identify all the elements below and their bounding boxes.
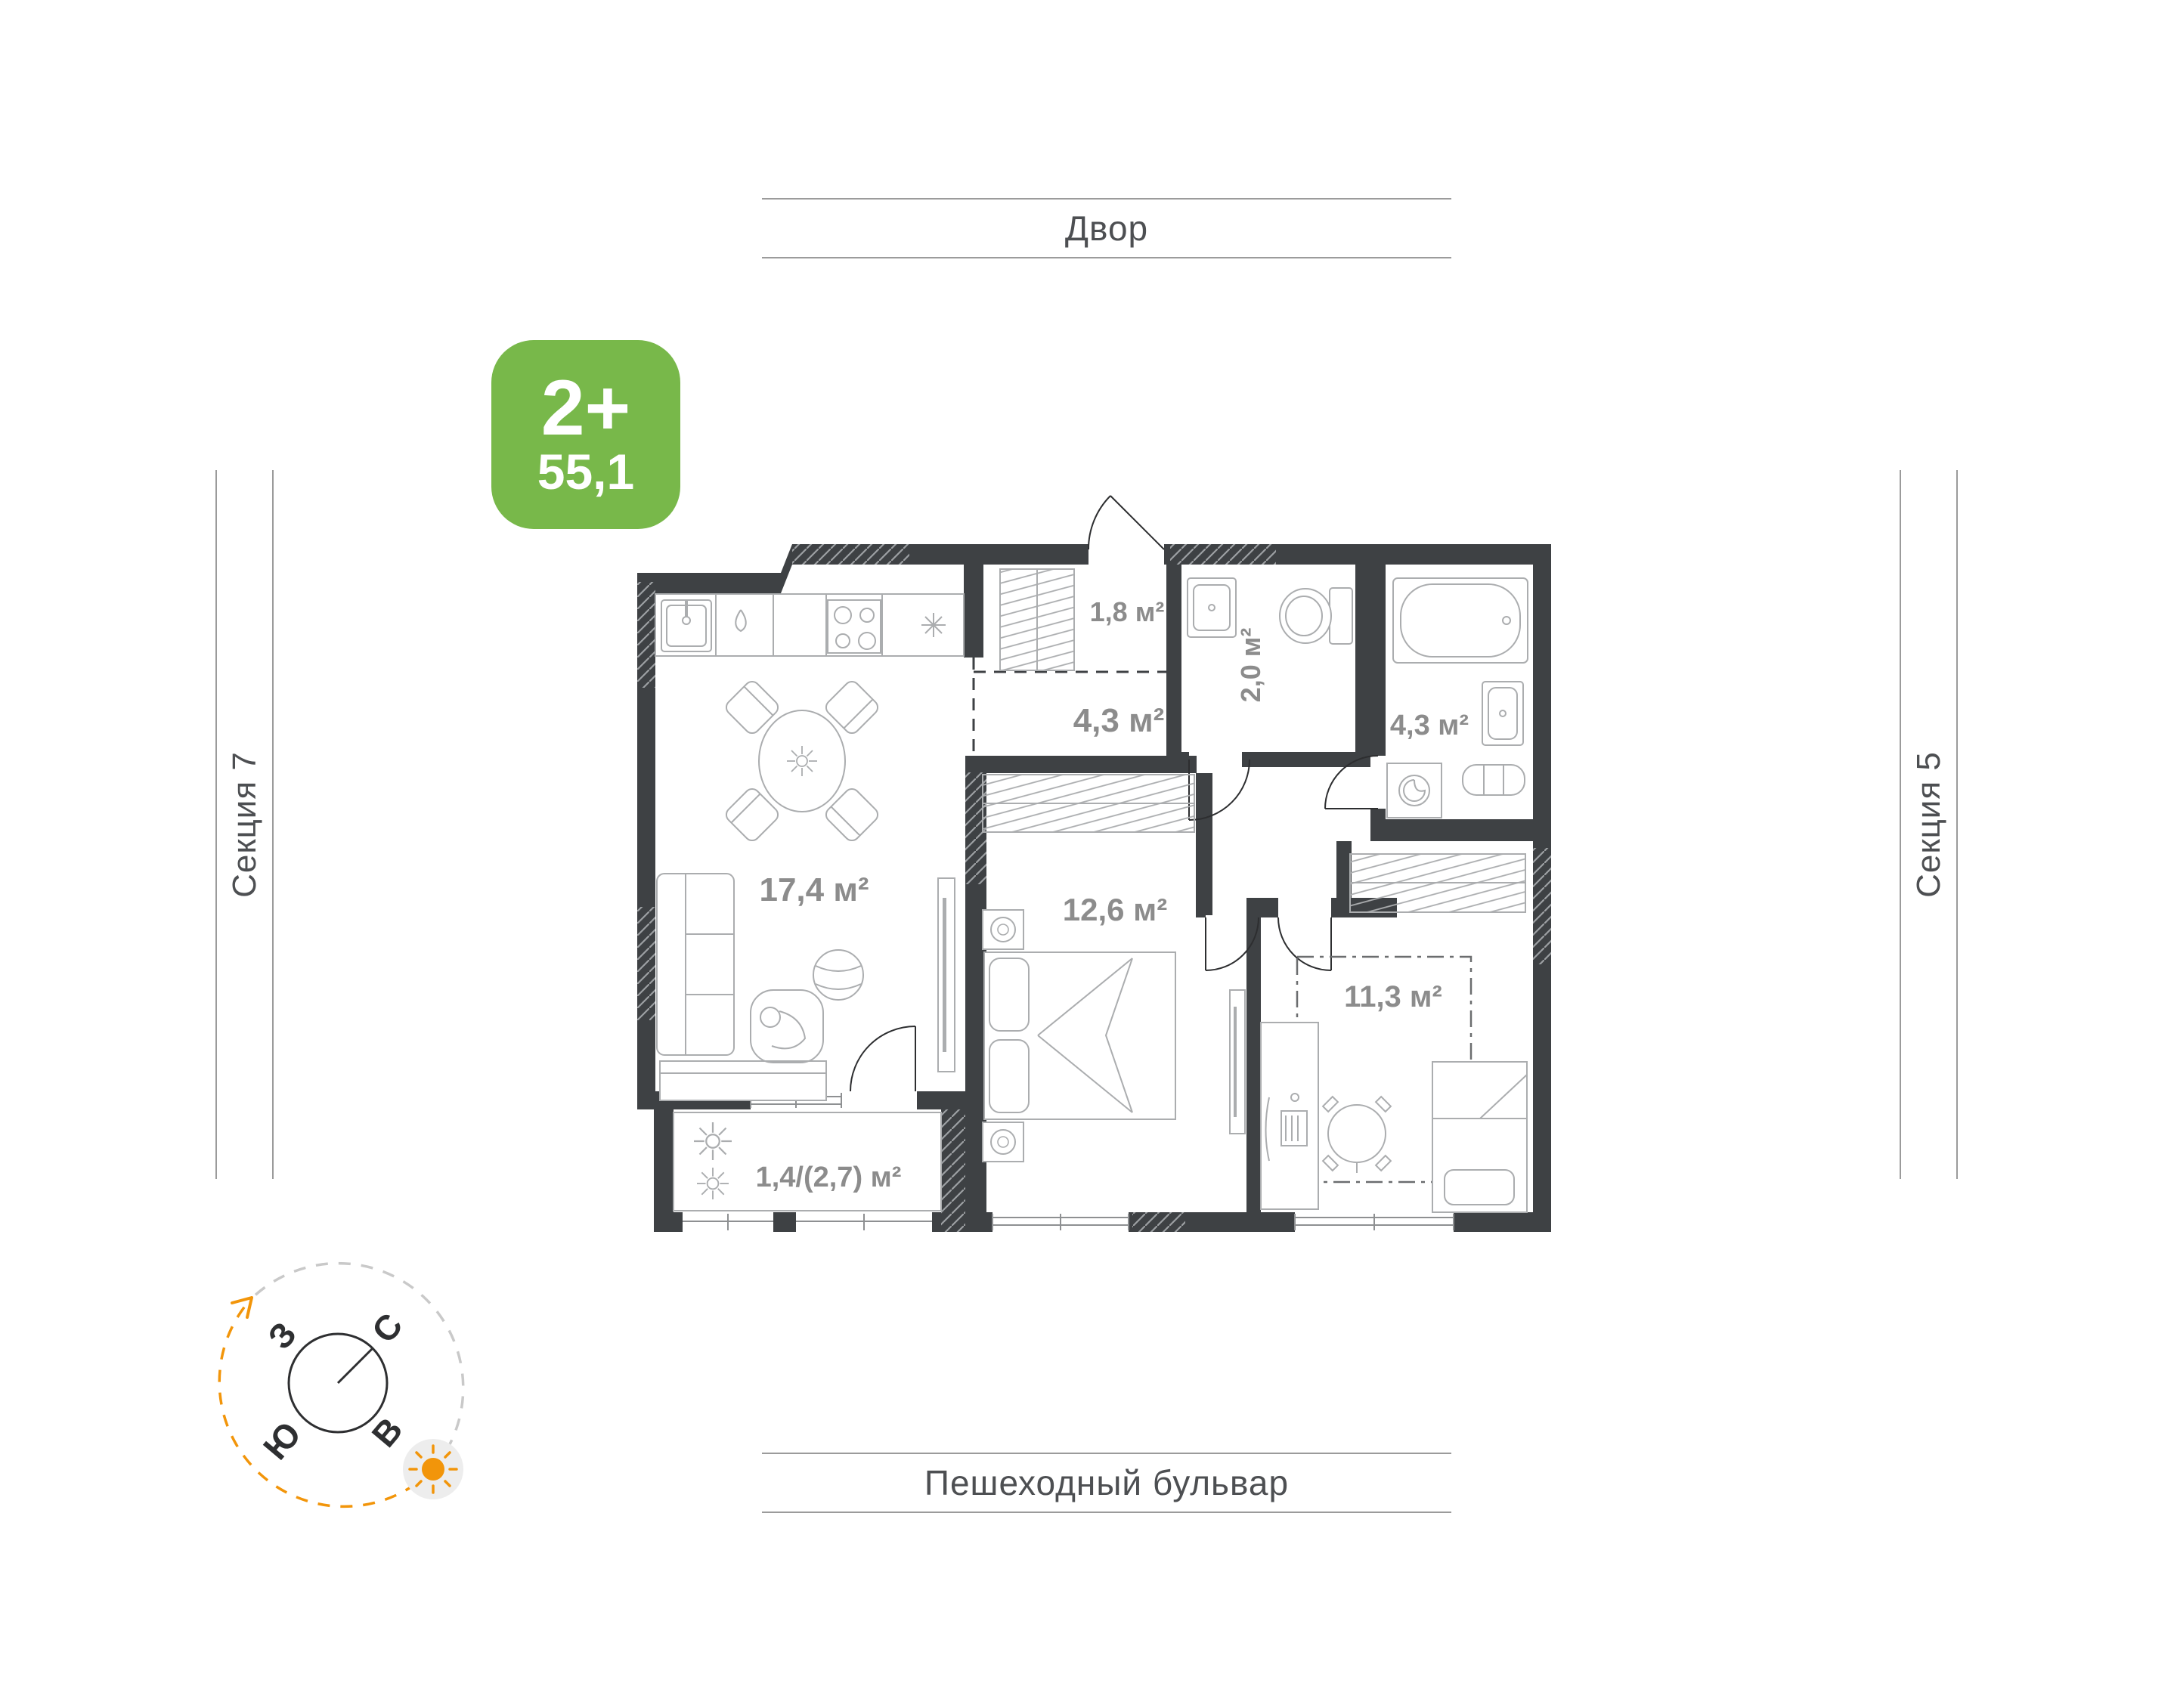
area-label-kitchen-living: 17,4 м² [759, 871, 869, 908]
toilet-icon [1280, 588, 1352, 644]
street-label-bottom-text: Пешеходный бульвар [924, 1462, 1289, 1503]
nightstand-bottom [983, 1122, 1023, 1162]
child-wardrobe [1350, 854, 1525, 912]
street-label-top: Двор [762, 198, 1451, 258]
section-label-right: Секция 5 [1900, 470, 1958, 1179]
nightstand-top [983, 910, 1023, 949]
area-label-bathroom: 4,3 м² [1390, 710, 1469, 741]
area-label-wc: 2,0 м² [1235, 628, 1266, 703]
compass-south: Ю [255, 1414, 308, 1467]
area-label-bedroom: 12,6 м² [1063, 892, 1167, 927]
badge-rooms-count: 2+ [541, 371, 631, 446]
area-label-child-room: 11,3 м² [1344, 980, 1442, 1013]
tv-panel-bedroom [1230, 990, 1245, 1134]
towel-rail-icon [1463, 765, 1525, 795]
wc-sink-icon [1188, 578, 1236, 637]
bathtub-icon [1393, 578, 1528, 663]
compass-west: З [260, 1314, 304, 1357]
kitchen-counter [655, 594, 964, 656]
window-child-room [1295, 1212, 1454, 1232]
window-bedroom [993, 1212, 1129, 1232]
area-label-hallway: 4,3 м² [1073, 702, 1165, 739]
bedroom-wardrobe [983, 775, 1194, 832]
tv-console-living [938, 878, 955, 1072]
compass-dial [289, 1334, 387, 1432]
sun-icon [403, 1439, 463, 1499]
street-label-top-text: Двор [1065, 208, 1148, 249]
child-room-door [1278, 917, 1331, 970]
bathroom-sink-icon [1482, 682, 1523, 745]
street-label-bottom: Пешеходный бульвар [762, 1453, 1451, 1513]
washing-machine-icon [1387, 763, 1442, 818]
section-label-left: Секция 7 [215, 470, 274, 1179]
compass: С З Ю В [178, 1228, 503, 1553]
dining-table [723, 679, 881, 843]
desk-icon [1261, 1023, 1318, 1209]
hall-wardrobe-rack [1000, 569, 1074, 670]
area-label-wardrobe: 1,8 м² [1090, 596, 1165, 627]
compass-north: С [364, 1306, 410, 1351]
floor-plan: 17,4 м² 4,3 м² 1,8 м² 2,0 м² 4,3 м² 12,6… [637, 465, 1552, 1255]
area-label-balcony: 1,4/(2,7) м² [756, 1162, 902, 1193]
section-label-left-text: Секция 7 [226, 751, 264, 898]
balcony-door [850, 1026, 915, 1091]
entrance-door [1088, 496, 1164, 549]
badge-total-area: 55,1 [537, 446, 634, 498]
double-bed-icon [984, 952, 1175, 1119]
window-balcony-glazing [683, 1212, 932, 1232]
armchair-person-icon [751, 990, 823, 1063]
section-label-right-text: Секция 5 [1910, 751, 1948, 898]
page: { "apartment_card": { "rooms_badge": "2+… [0, 0, 2177, 1708]
ball-icon [813, 950, 863, 1000]
single-bed-icon [1432, 1062, 1527, 1212]
desk-chair-icon [1323, 1097, 1391, 1173]
compass-arrowhead [232, 1298, 252, 1317]
